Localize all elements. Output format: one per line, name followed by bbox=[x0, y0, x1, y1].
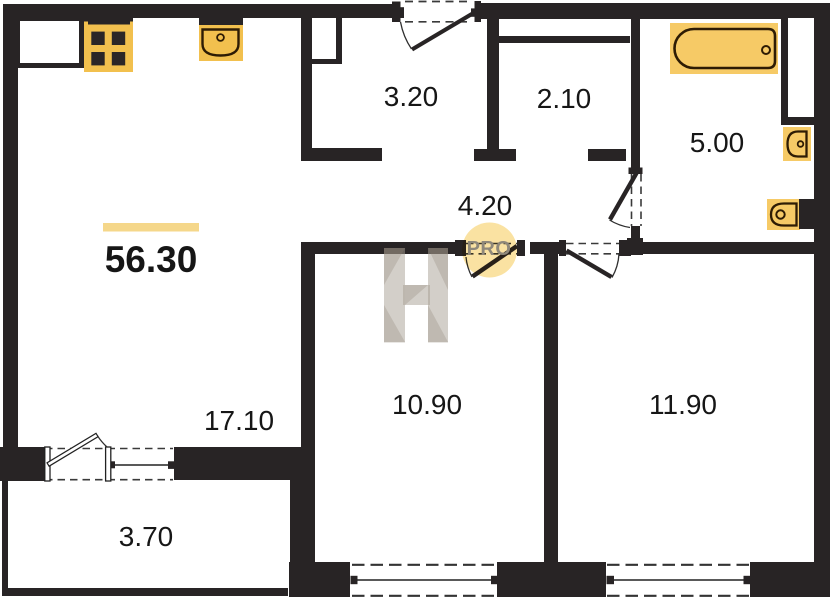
svg-text:17.10: 17.10 bbox=[204, 405, 274, 436]
svg-text:3.70: 3.70 bbox=[119, 521, 174, 552]
svg-text:PRO: PRO bbox=[467, 238, 512, 260]
svg-text:5.00: 5.00 bbox=[690, 127, 745, 158]
svg-text:4.20: 4.20 bbox=[458, 190, 513, 221]
svg-text:11.90: 11.90 bbox=[649, 389, 717, 420]
svg-text:56.30: 56.30 bbox=[105, 239, 198, 280]
svg-text:2.10: 2.10 bbox=[537, 83, 592, 114]
svg-text:3.20: 3.20 bbox=[384, 81, 439, 112]
svg-text:10.90: 10.90 bbox=[392, 389, 462, 420]
